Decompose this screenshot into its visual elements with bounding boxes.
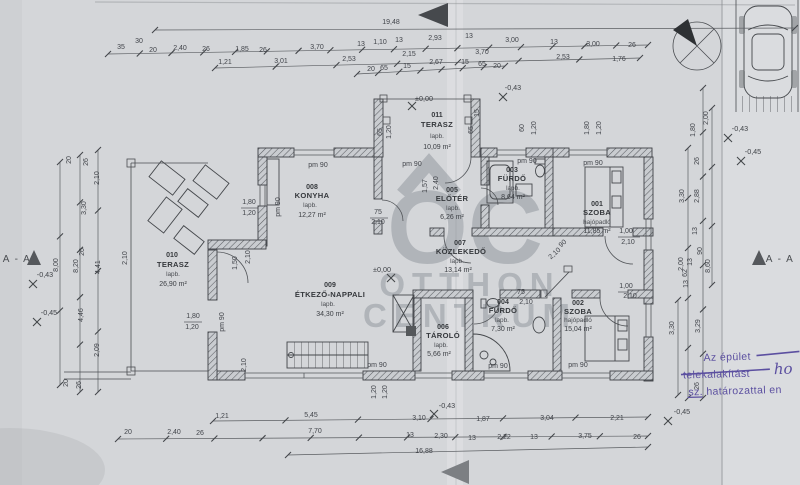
dim-value: 75	[374, 209, 382, 216]
dim-value: 26	[628, 42, 636, 49]
svg-text:34,30 m²: 34,30 m²	[316, 311, 344, 318]
svg-text:lapb.: lapb.	[303, 202, 317, 209]
dim-value: 15	[461, 59, 469, 66]
dim-value: 2,10	[245, 250, 252, 264]
dim-value: 2,10	[519, 299, 533, 306]
floor-plan-drawing: OC OTTHON CENTRUM	[0, 0, 800, 485]
dim-value: 26	[83, 158, 90, 166]
dim-value: 13	[687, 258, 694, 266]
svg-text:KÖZLEKEDŐ: KÖZLEKEDŐ	[436, 247, 486, 256]
dim-value: 13	[468, 435, 476, 442]
dim-value: -0,43	[505, 83, 521, 92]
svg-text:10,09 m²: 10,09 m²	[423, 144, 451, 151]
svg-text:ELŐTÉR: ELŐTÉR	[436, 194, 469, 203]
dim-value: 2,00	[703, 111, 710, 125]
dim-value: -0,43	[439, 401, 455, 410]
dim-value: 3,75	[578, 433, 592, 440]
dim-value: 26	[633, 434, 641, 441]
dim-value: 2,53	[556, 54, 570, 61]
dim-value: 1,21	[215, 413, 229, 420]
dim-value: 20	[367, 66, 375, 73]
dim-value: 15	[474, 109, 481, 117]
dim-value: 4,41	[95, 260, 102, 274]
dim-value: 2,10	[621, 239, 635, 246]
dim-value: 13	[692, 227, 699, 235]
dim-value: 65	[380, 65, 388, 72]
dim-value: 1,00	[619, 283, 633, 290]
stamp-line3: sz. határozattal en	[688, 384, 782, 398]
dim-value: 13	[530, 434, 538, 441]
dim-value: -0,45	[41, 308, 57, 317]
dim-value: 5,45	[304, 412, 318, 419]
dim-value: -0,43	[37, 270, 53, 279]
svg-text:SZOBA: SZOBA	[583, 208, 611, 217]
dim-value: 2,09	[94, 343, 101, 357]
svg-text:lapb.: lapb.	[446, 205, 460, 212]
svg-text:TERASZ: TERASZ	[157, 260, 189, 269]
dim-value: 60	[519, 124, 526, 132]
dim-value: 2,40	[173, 45, 187, 52]
svg-text:13,14 m²: 13,14 m²	[444, 267, 472, 274]
dim-value: 26	[694, 157, 701, 165]
dim-value: 13	[395, 37, 403, 44]
svg-text:FÜRDŐ: FÜRDŐ	[498, 174, 527, 183]
dim-value: 1,76	[612, 56, 626, 63]
dim-value: 65	[468, 126, 475, 134]
dim-value: pm 90	[517, 158, 537, 165]
dim-value: 20	[66, 156, 73, 164]
dim-value: 2,22	[497, 434, 511, 441]
dim-value: 8,20	[73, 259, 80, 273]
stamp-line1: Az épület	[703, 351, 751, 364]
dim-value: 1,20	[531, 121, 538, 135]
svg-text:008: 008	[306, 184, 318, 191]
dim-value: 1,57	[422, 179, 429, 193]
svg-text:lapb.: lapb.	[430, 133, 444, 140]
svg-text:004: 004	[497, 299, 509, 306]
section-label: A - A	[766, 254, 795, 265]
svg-text:002: 002	[572, 300, 584, 307]
svg-text:KONYHA: KONYHA	[295, 191, 330, 200]
dim-value: 1,87	[476, 416, 490, 423]
dim-value: 3,29	[695, 319, 702, 333]
svg-text:lapb.: lapb.	[434, 342, 448, 349]
dim-value: -0,45	[674, 407, 690, 416]
dim-value: 20	[124, 429, 132, 436]
dim-value: 2,21	[610, 415, 624, 422]
dim-value: 1,20	[386, 125, 393, 139]
dim-value: 2,40	[433, 176, 440, 190]
dim-value: 15	[403, 63, 411, 70]
dim-value: 3,70	[310, 44, 324, 51]
scanned-floor-plan-sheet: OC OTTHON CENTRUM	[0, 0, 800, 485]
svg-text:006: 006	[437, 324, 449, 331]
dim-value: 3,04	[540, 415, 554, 422]
dim-value: 2,10	[371, 219, 385, 226]
stairs	[287, 342, 368, 368]
dim-value: 1,20	[596, 121, 603, 135]
svg-text:11,85 m²: 11,85 m²	[583, 228, 611, 235]
dim-value: pm 90	[402, 161, 422, 168]
dim-value: 2,30	[434, 433, 448, 440]
dim-value: 1,80	[690, 123, 697, 137]
dim-value: 20	[493, 63, 501, 70]
dim-value: 3,00	[586, 41, 600, 48]
svg-text:8,64 m²: 8,64 m²	[501, 194, 525, 201]
dim-value: 1,80	[584, 121, 591, 135]
dim-value: 2,00	[678, 257, 685, 271]
dim-value: 2,88	[694, 189, 701, 203]
dim-value: 1,20	[371, 385, 378, 399]
svg-text:lapb.: lapb.	[506, 185, 520, 192]
svg-text:hajópadló: hajópadló	[583, 219, 611, 226]
dim-value: -0,43	[732, 124, 748, 133]
dim-value: pm 90	[219, 312, 226, 332]
svg-text:007: 007	[454, 240, 466, 247]
svg-text:001: 001	[591, 201, 603, 208]
dim-value: 1,20	[185, 324, 199, 331]
dim-value: 3,30	[669, 321, 676, 335]
svg-text:lapb.: lapb.	[495, 317, 509, 324]
dim-value: 1,20	[242, 210, 256, 217]
svg-text:12,27 m²: 12,27 m²	[298, 212, 326, 219]
dim-value: 13	[683, 280, 690, 288]
svg-text:6,26 m²: 6,26 m²	[440, 214, 464, 221]
dim-value: 8,00	[53, 258, 60, 272]
dim-value: 1,00	[619, 228, 633, 235]
svg-text:lapb.: lapb.	[450, 258, 464, 265]
dim-value: 3,30	[81, 201, 88, 215]
svg-text:TÁROLÓ: TÁROLÓ	[426, 331, 460, 340]
dim-value: pm 90	[367, 362, 387, 369]
stamp-handwriting: ho	[774, 360, 793, 378]
dim-value: 20	[149, 47, 157, 54]
dim-value: 65	[377, 128, 384, 136]
dim-value: 30	[135, 38, 143, 45]
svg-text:TERASZ: TERASZ	[421, 120, 453, 129]
svg-text:010: 010	[166, 252, 178, 259]
dim-value: 1,50	[232, 256, 239, 270]
dim-value: 90	[697, 247, 704, 255]
section-label: A - A	[3, 254, 32, 265]
svg-text:FÜRDŐ: FÜRDŐ	[489, 306, 518, 315]
dim-value: pm 90	[583, 160, 603, 167]
dim-value: 20	[63, 379, 70, 387]
svg-text:lapb.: lapb.	[321, 301, 335, 308]
svg-text:26,90 m²: 26,90 m²	[159, 281, 187, 288]
dim-value: 3,10	[412, 415, 426, 422]
dim-value: 26	[196, 430, 204, 437]
dim-value: 2,67	[429, 59, 443, 66]
dim-value: 8,60	[705, 259, 712, 273]
dim-value: -0,45	[745, 147, 761, 156]
svg-text:7,30 m²: 7,30 m²	[491, 326, 515, 333]
dim-value: pm 90	[275, 197, 282, 217]
dim-value: 1,21	[218, 59, 232, 66]
svg-text:SZOBA: SZOBA	[564, 307, 592, 316]
svg-text:005: 005	[446, 187, 458, 194]
dim-value: 2,10	[241, 358, 248, 372]
dim-value: 2,10	[623, 293, 637, 300]
dim-value: 7,70	[308, 428, 322, 435]
dim-value: 1,10	[373, 39, 387, 46]
total-width-label: 19,48	[382, 19, 400, 26]
dim-value: 2,53	[342, 56, 356, 63]
svg-text:5,66 m²: 5,66 m²	[427, 351, 451, 358]
dim-value: 13	[357, 41, 365, 48]
dim-value: 2,15	[402, 51, 416, 58]
svg-text:011: 011	[431, 112, 442, 119]
dim-value: 26	[76, 381, 83, 389]
dim-value: 13	[406, 432, 414, 439]
dim-value: 2,10	[122, 251, 129, 265]
dim-value: 75	[517, 289, 525, 296]
dim-value: 2,40	[167, 429, 181, 436]
svg-text:hajópadló: hajópadló	[564, 317, 592, 324]
svg-text:ÉTKEZŐ-NAPPALI: ÉTKEZŐ-NAPPALI	[295, 290, 365, 299]
dim-value: 62	[682, 269, 689, 277]
svg-text:009: 009	[324, 282, 336, 289]
dim-value: pm 90	[488, 363, 508, 370]
svg-text:15,04 m²: 15,04 m²	[564, 326, 592, 333]
total-bottom-label: 16,88	[415, 448, 433, 455]
dim-value: pm 90	[568, 362, 588, 369]
dim-value: ±0,00	[373, 265, 391, 274]
dim-value: 1,80	[186, 313, 200, 320]
dim-value: 13	[465, 33, 473, 40]
dim-value: 2,10	[94, 171, 101, 185]
dim-value: ±0,00	[415, 94, 433, 103]
dim-value: 1,20	[382, 385, 389, 399]
dim-value: 2,93	[428, 35, 442, 42]
dim-value: pm 90	[308, 162, 328, 169]
dim-value: 4,46	[78, 308, 85, 322]
dim-value: 3,01	[274, 58, 288, 65]
dim-value: 3,00	[505, 37, 519, 44]
dim-value: 35	[117, 44, 125, 51]
svg-text:003: 003	[506, 167, 518, 174]
svg-text:lapb.: lapb.	[166, 271, 180, 278]
dim-value: 1,80	[242, 199, 256, 206]
